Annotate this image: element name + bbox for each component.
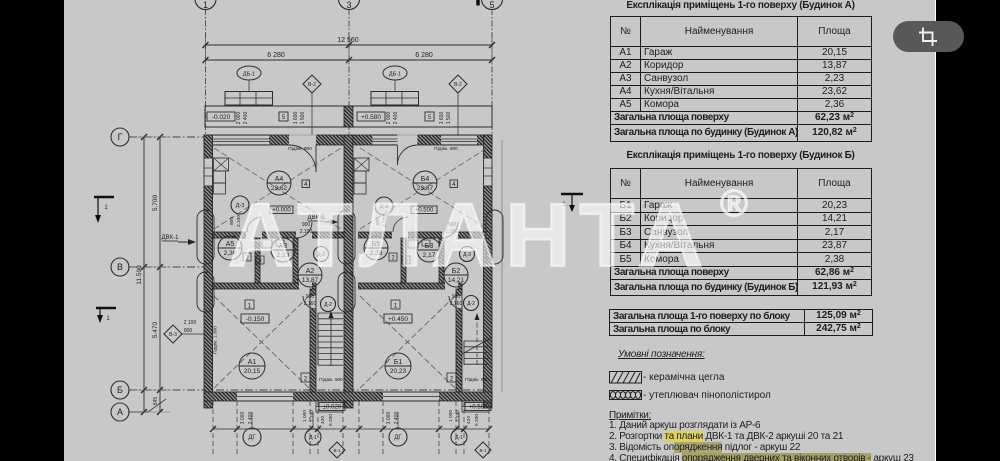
svg-text:В-2: В-2 (308, 82, 316, 88)
svg-text:Д-2: Д-2 (467, 301, 475, 307)
svg-text:5 200: 5 200 (328, 414, 334, 426)
svg-text:6 280: 6 280 (267, 52, 285, 59)
svg-text:-0.020: -0.020 (212, 114, 231, 121)
svg-text:+0.580: +0.580 (469, 405, 488, 411)
svg-text:А1: А1 (248, 359, 257, 366)
svg-text:5 200: 5 200 (474, 414, 480, 426)
svg-text:5.700: 5.700 (152, 194, 159, 211)
svg-text:800: 800 (184, 328, 193, 334)
svg-text:1 500: 1 500 (446, 112, 452, 125)
svg-text:2 400: 2 400 (243, 112, 249, 125)
svg-text:2 400: 2 400 (393, 112, 399, 125)
svg-text:1: 1 (104, 205, 108, 211)
svg-text:Підвік. 1.300: Підвік. 1.300 (213, 326, 219, 354)
svg-text:5: 5 (282, 115, 286, 121)
svg-text:Підвік. 900: Підвік. 900 (465, 377, 489, 383)
svg-text:2: 2 (304, 376, 308, 383)
svg-text:+0.580: +0.580 (361, 114, 381, 121)
svg-text:+0.450: +0.450 (388, 316, 408, 323)
svg-text:А: А (117, 407, 123, 417)
svg-text:1: 1 (394, 303, 398, 310)
svg-text:11.590: 11.590 (136, 265, 143, 285)
svg-text:1: 1 (106, 316, 110, 322)
svg-text:В-1: В-1 (333, 448, 341, 453)
svg-text:Б1: Б1 (394, 359, 403, 366)
svg-text:А4: А4 (275, 176, 284, 183)
svg-text:1 100: 1 100 (455, 410, 461, 422)
svg-text:Підвік. 900: Підвік. 900 (434, 146, 458, 152)
svg-text:1 600: 1 600 (439, 112, 445, 125)
svg-text:2 000: 2 000 (386, 112, 392, 125)
svg-text:2.160: 2.160 (304, 301, 317, 307)
svg-text:Б4: Б4 (421, 176, 430, 183)
svg-text:12 560: 12 560 (337, 37, 359, 44)
svg-text:1 500: 1 500 (300, 112, 306, 125)
svg-text:3.000: 3.000 (240, 412, 246, 425)
svg-text:1 000: 1 000 (302, 410, 308, 422)
svg-text:ДГ: ДГ (248, 435, 256, 441)
svg-text:5: 5 (428, 115, 432, 121)
svg-text:1 000: 1 000 (448, 410, 454, 422)
svg-text:420: 420 (466, 416, 472, 424)
svg-text:3: 3 (346, 0, 351, 10)
svg-text:В: В (117, 262, 123, 272)
svg-text:ДГ: ДГ (394, 435, 402, 441)
svg-text:1 100: 1 100 (309, 410, 315, 422)
svg-text:900: 900 (306, 294, 315, 300)
svg-text:6 280: 6 280 (415, 52, 433, 59)
svg-text:Д-2: Д-2 (324, 302, 332, 308)
svg-text:2.400: 2.400 (248, 412, 254, 425)
svg-text:2 100: 2 100 (184, 320, 197, 326)
svg-text:Д-1: Д-1 (455, 435, 463, 441)
svg-text:ДБ-1: ДБ-1 (243, 72, 255, 78)
svg-text:845: 845 (153, 397, 159, 406)
svg-text:2: 2 (450, 376, 454, 383)
svg-text:1 600: 1 600 (293, 112, 299, 125)
svg-text:ДВК-1: ДВК-1 (162, 235, 180, 241)
svg-text:1: 1 (203, 0, 208, 10)
svg-text:420: 420 (320, 416, 326, 424)
svg-text:±0.020: ±0.020 (323, 405, 342, 411)
svg-text:В-3: В-3 (169, 332, 177, 338)
svg-text:5.470: 5.470 (152, 321, 159, 338)
svg-text:ДБ-1: ДБ-1 (389, 72, 401, 78)
svg-text:20,15: 20,15 (244, 368, 261, 375)
svg-text:5: 5 (489, 0, 494, 10)
svg-text:3.000: 3.000 (386, 412, 392, 425)
svg-text:2 000: 2 000 (236, 112, 242, 125)
svg-text:2.160: 2.160 (450, 301, 463, 307)
svg-text:В-2: В-2 (454, 82, 462, 88)
svg-text:2.400: 2.400 (394, 412, 400, 425)
svg-text:Д-1: Д-1 (309, 435, 317, 441)
svg-text:900: 900 (452, 294, 461, 300)
svg-text:Г: Г (118, 132, 123, 142)
svg-text:Підвік. 900: Підвік. 900 (288, 146, 312, 152)
svg-text:В-1: В-1 (479, 448, 487, 453)
svg-text:Підвік. 900: Підвік. 900 (319, 377, 343, 383)
svg-text:Б: Б (117, 385, 123, 395)
svg-text:-0.150: -0.150 (246, 316, 265, 323)
svg-text:1: 1 (248, 303, 252, 310)
svg-text:20,23: 20,23 (390, 368, 407, 375)
